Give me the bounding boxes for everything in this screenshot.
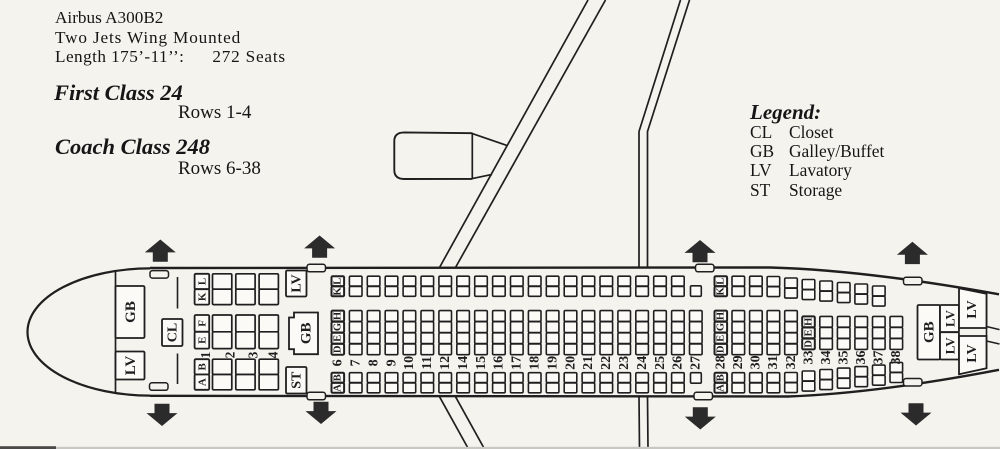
svg-text:19: 19 [545, 356, 560, 370]
svg-text:24: 24 [635, 356, 650, 370]
svg-text:18: 18 [527, 356, 542, 370]
svg-text:L: L [196, 278, 208, 285]
svg-text:A: A [196, 378, 208, 386]
svg-text:K: K [333, 286, 344, 295]
svg-text:GB: GB [123, 301, 139, 323]
svg-text:11: 11 [420, 356, 435, 369]
svg-text:L: L [716, 278, 727, 285]
svg-text:LV: LV [965, 344, 980, 362]
svg-text:LV: LV [943, 310, 958, 327]
svg-text:A: A [333, 384, 344, 392]
svg-text:33: 33 [801, 351, 816, 365]
svg-text:H: H [333, 312, 344, 320]
svg-text:G: G [716, 323, 727, 331]
svg-text:B: B [196, 362, 208, 370]
svg-text:H: H [716, 312, 727, 320]
svg-text:K: K [716, 286, 727, 295]
svg-text:D: D [716, 345, 727, 353]
svg-text:12: 12 [438, 356, 453, 370]
svg-text:GB: GB [921, 321, 937, 343]
svg-text:A: A [716, 384, 727, 392]
svg-text:K: K [196, 292, 208, 301]
svg-text:10: 10 [402, 356, 417, 370]
svg-text:31: 31 [766, 355, 781, 369]
svg-text:LV: LV [289, 274, 304, 292]
svg-text:34: 34 [819, 351, 834, 365]
svg-text:E: E [716, 335, 727, 342]
svg-text:17: 17 [510, 356, 525, 370]
svg-text:22: 22 [599, 356, 614, 370]
svg-text:8: 8 [366, 359, 381, 366]
svg-text:H: H [803, 318, 814, 326]
svg-text:B: B [716, 374, 727, 381]
svg-text:37: 37 [872, 351, 887, 365]
svg-text:29: 29 [731, 355, 746, 369]
svg-text:25: 25 [653, 356, 668, 370]
svg-text:E: E [803, 329, 814, 336]
svg-text:28: 28 [714, 355, 729, 369]
svg-text:1: 1 [198, 351, 213, 358]
svg-text:14: 14 [456, 356, 471, 370]
svg-text:LV: LV [943, 337, 958, 354]
svg-text:4: 4 [266, 351, 281, 358]
svg-text:9: 9 [384, 359, 399, 366]
svg-text:7: 7 [348, 359, 363, 366]
svg-text:F: F [196, 320, 208, 327]
svg-text:35: 35 [836, 351, 851, 365]
svg-text:21: 21 [581, 356, 596, 370]
svg-text:38: 38 [889, 351, 904, 365]
svg-text:LV: LV [123, 356, 139, 376]
svg-text:B: B [333, 374, 344, 381]
svg-text:36: 36 [854, 351, 869, 365]
svg-text:ST: ST [289, 371, 304, 389]
svg-text:15: 15 [474, 356, 489, 370]
svg-text:3: 3 [246, 351, 261, 358]
svg-text:6: 6 [331, 359, 346, 366]
svg-text:16: 16 [492, 356, 507, 370]
svg-text:23: 23 [617, 356, 632, 370]
svg-text:E: E [333, 335, 344, 342]
svg-text:E: E [196, 337, 208, 344]
svg-text:L: L [333, 278, 344, 285]
svg-text:27: 27 [689, 356, 704, 370]
svg-text:32: 32 [784, 355, 799, 369]
svg-text:LV: LV [965, 300, 980, 318]
svg-text:20: 20 [563, 356, 578, 370]
svg-text:GB: GB [299, 322, 315, 344]
svg-text:G: G [333, 323, 344, 331]
svg-text:26: 26 [671, 356, 686, 370]
svg-text:30: 30 [749, 355, 764, 369]
svg-text:2: 2 [222, 351, 237, 358]
svg-text:D: D [333, 345, 344, 353]
svg-text:D: D [803, 340, 814, 348]
svg-text:CL: CL [165, 323, 180, 342]
